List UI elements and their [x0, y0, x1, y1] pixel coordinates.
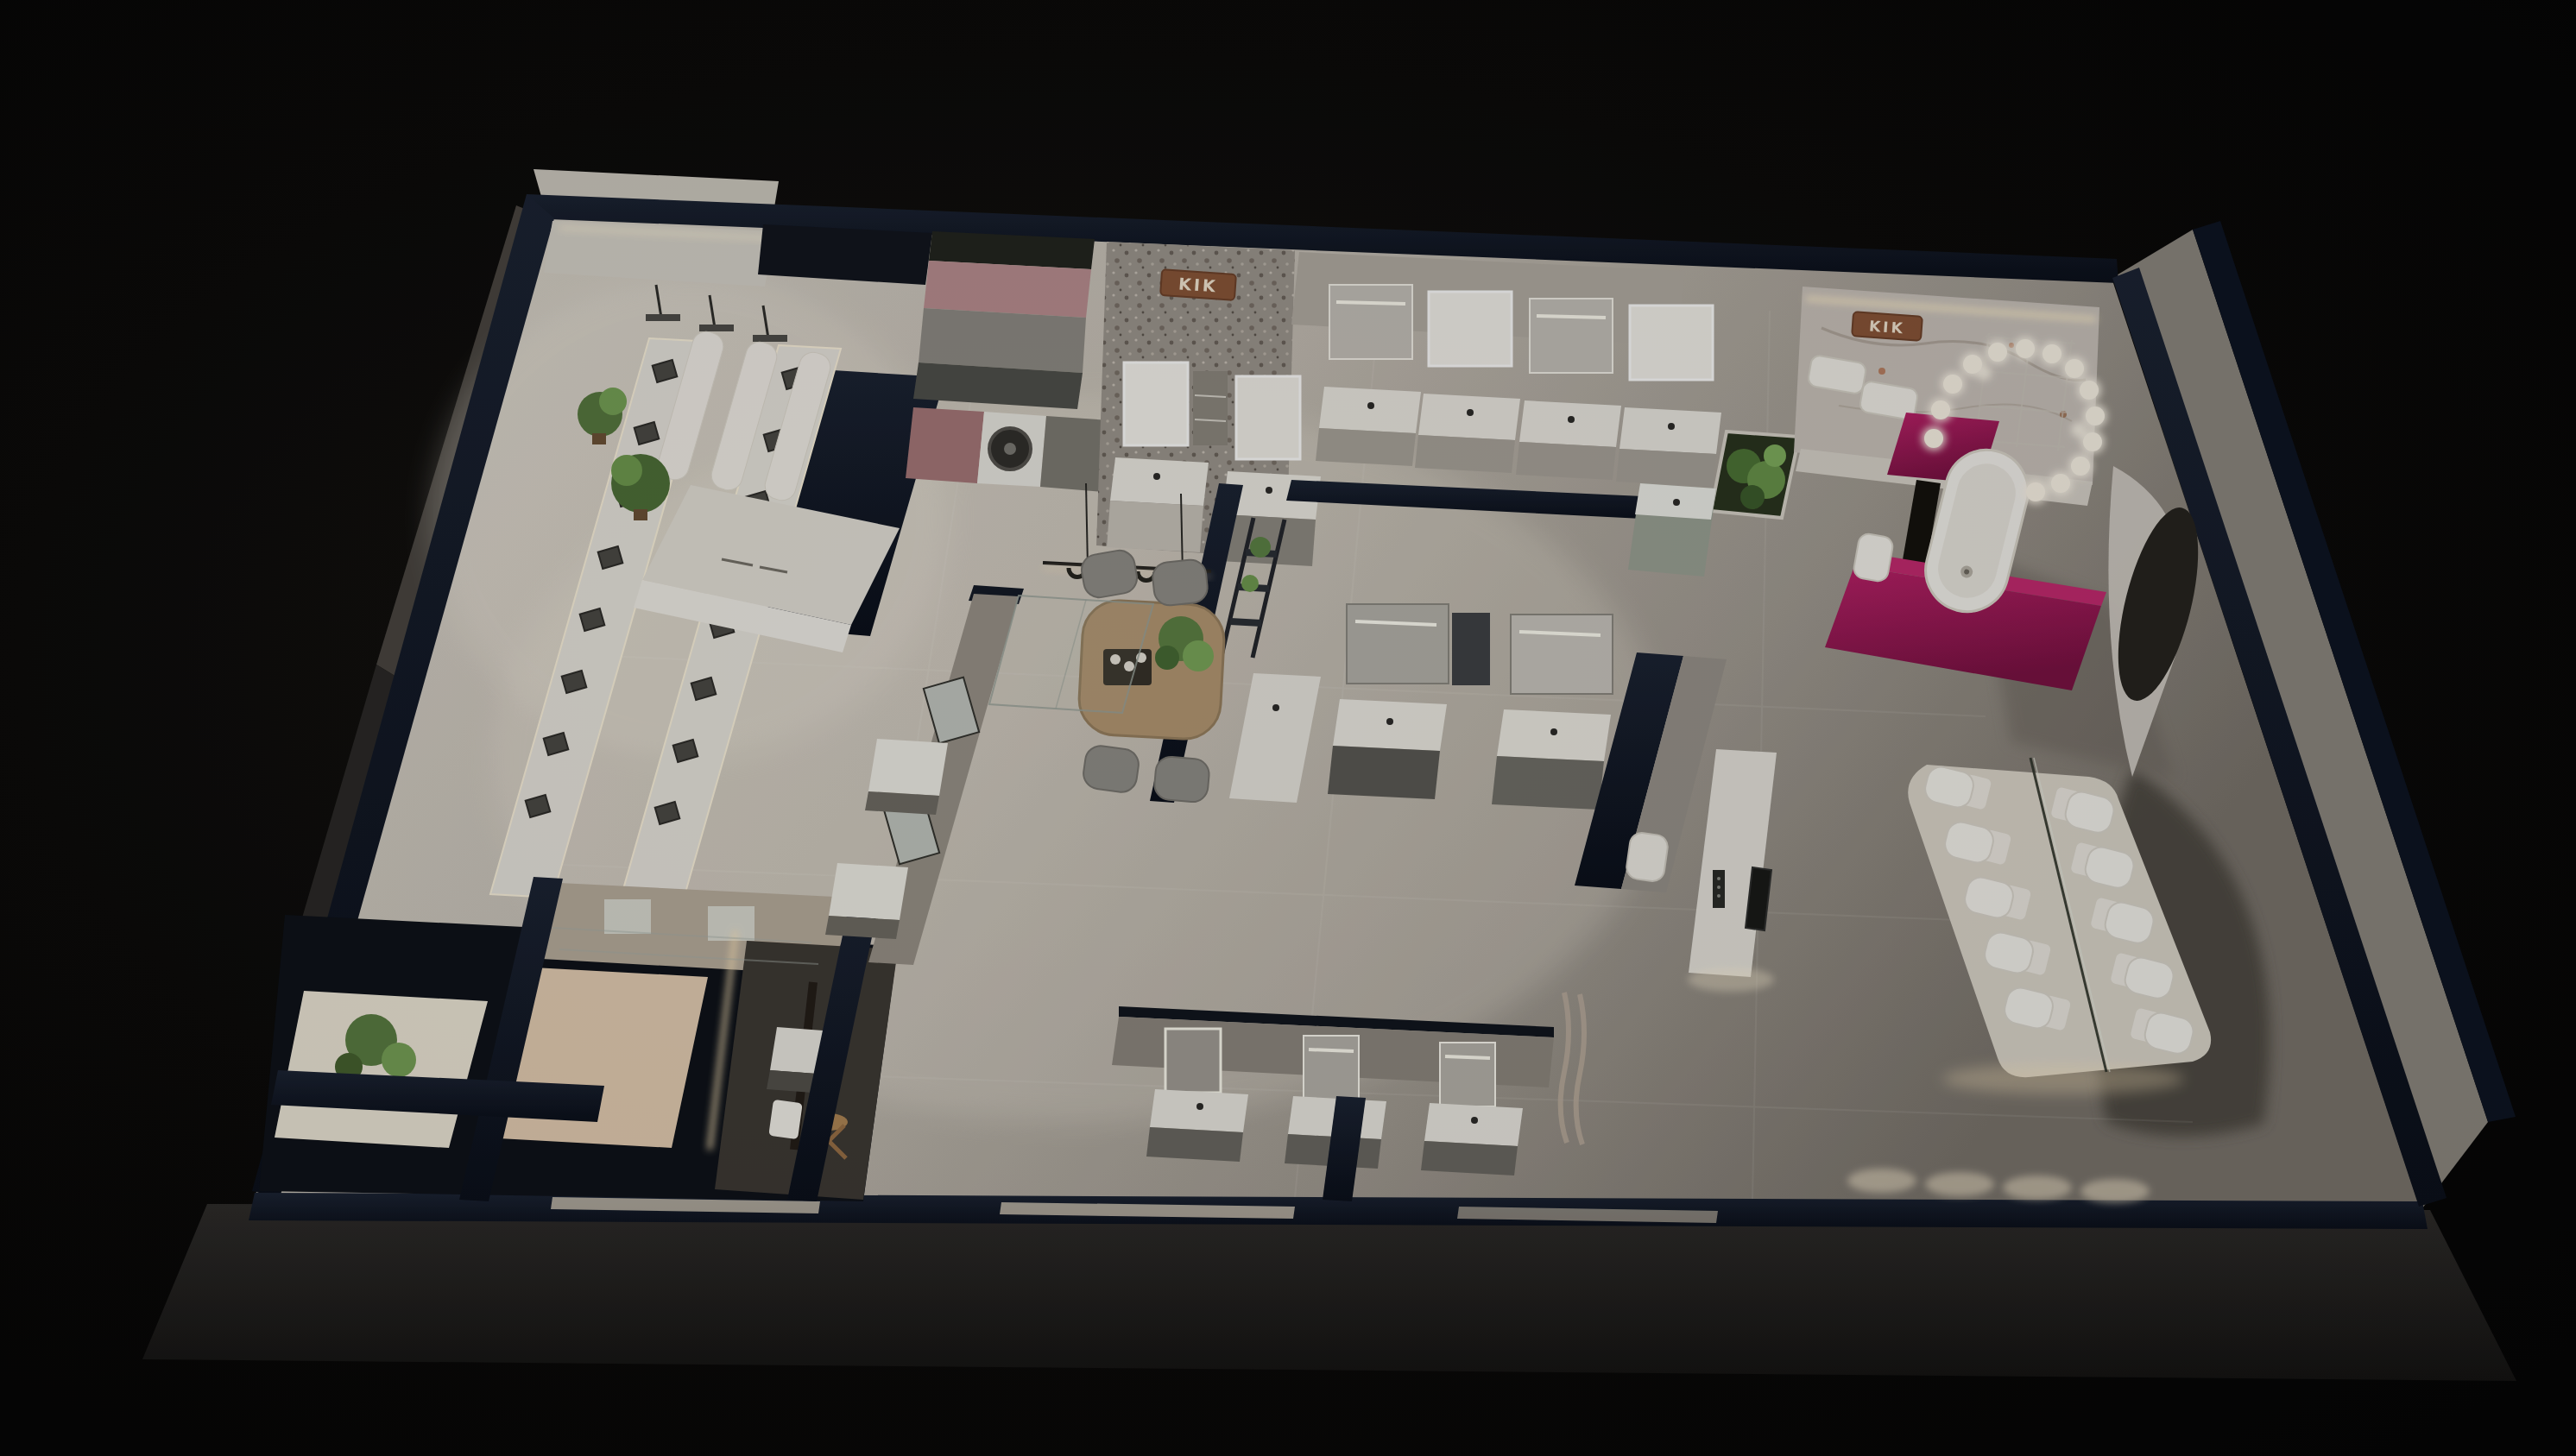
vignette-overlay: [0, 0, 2576, 1456]
showroom-render: KIK: [0, 0, 2576, 1456]
showroom-render-stage: KIK: [0, 0, 2576, 1456]
